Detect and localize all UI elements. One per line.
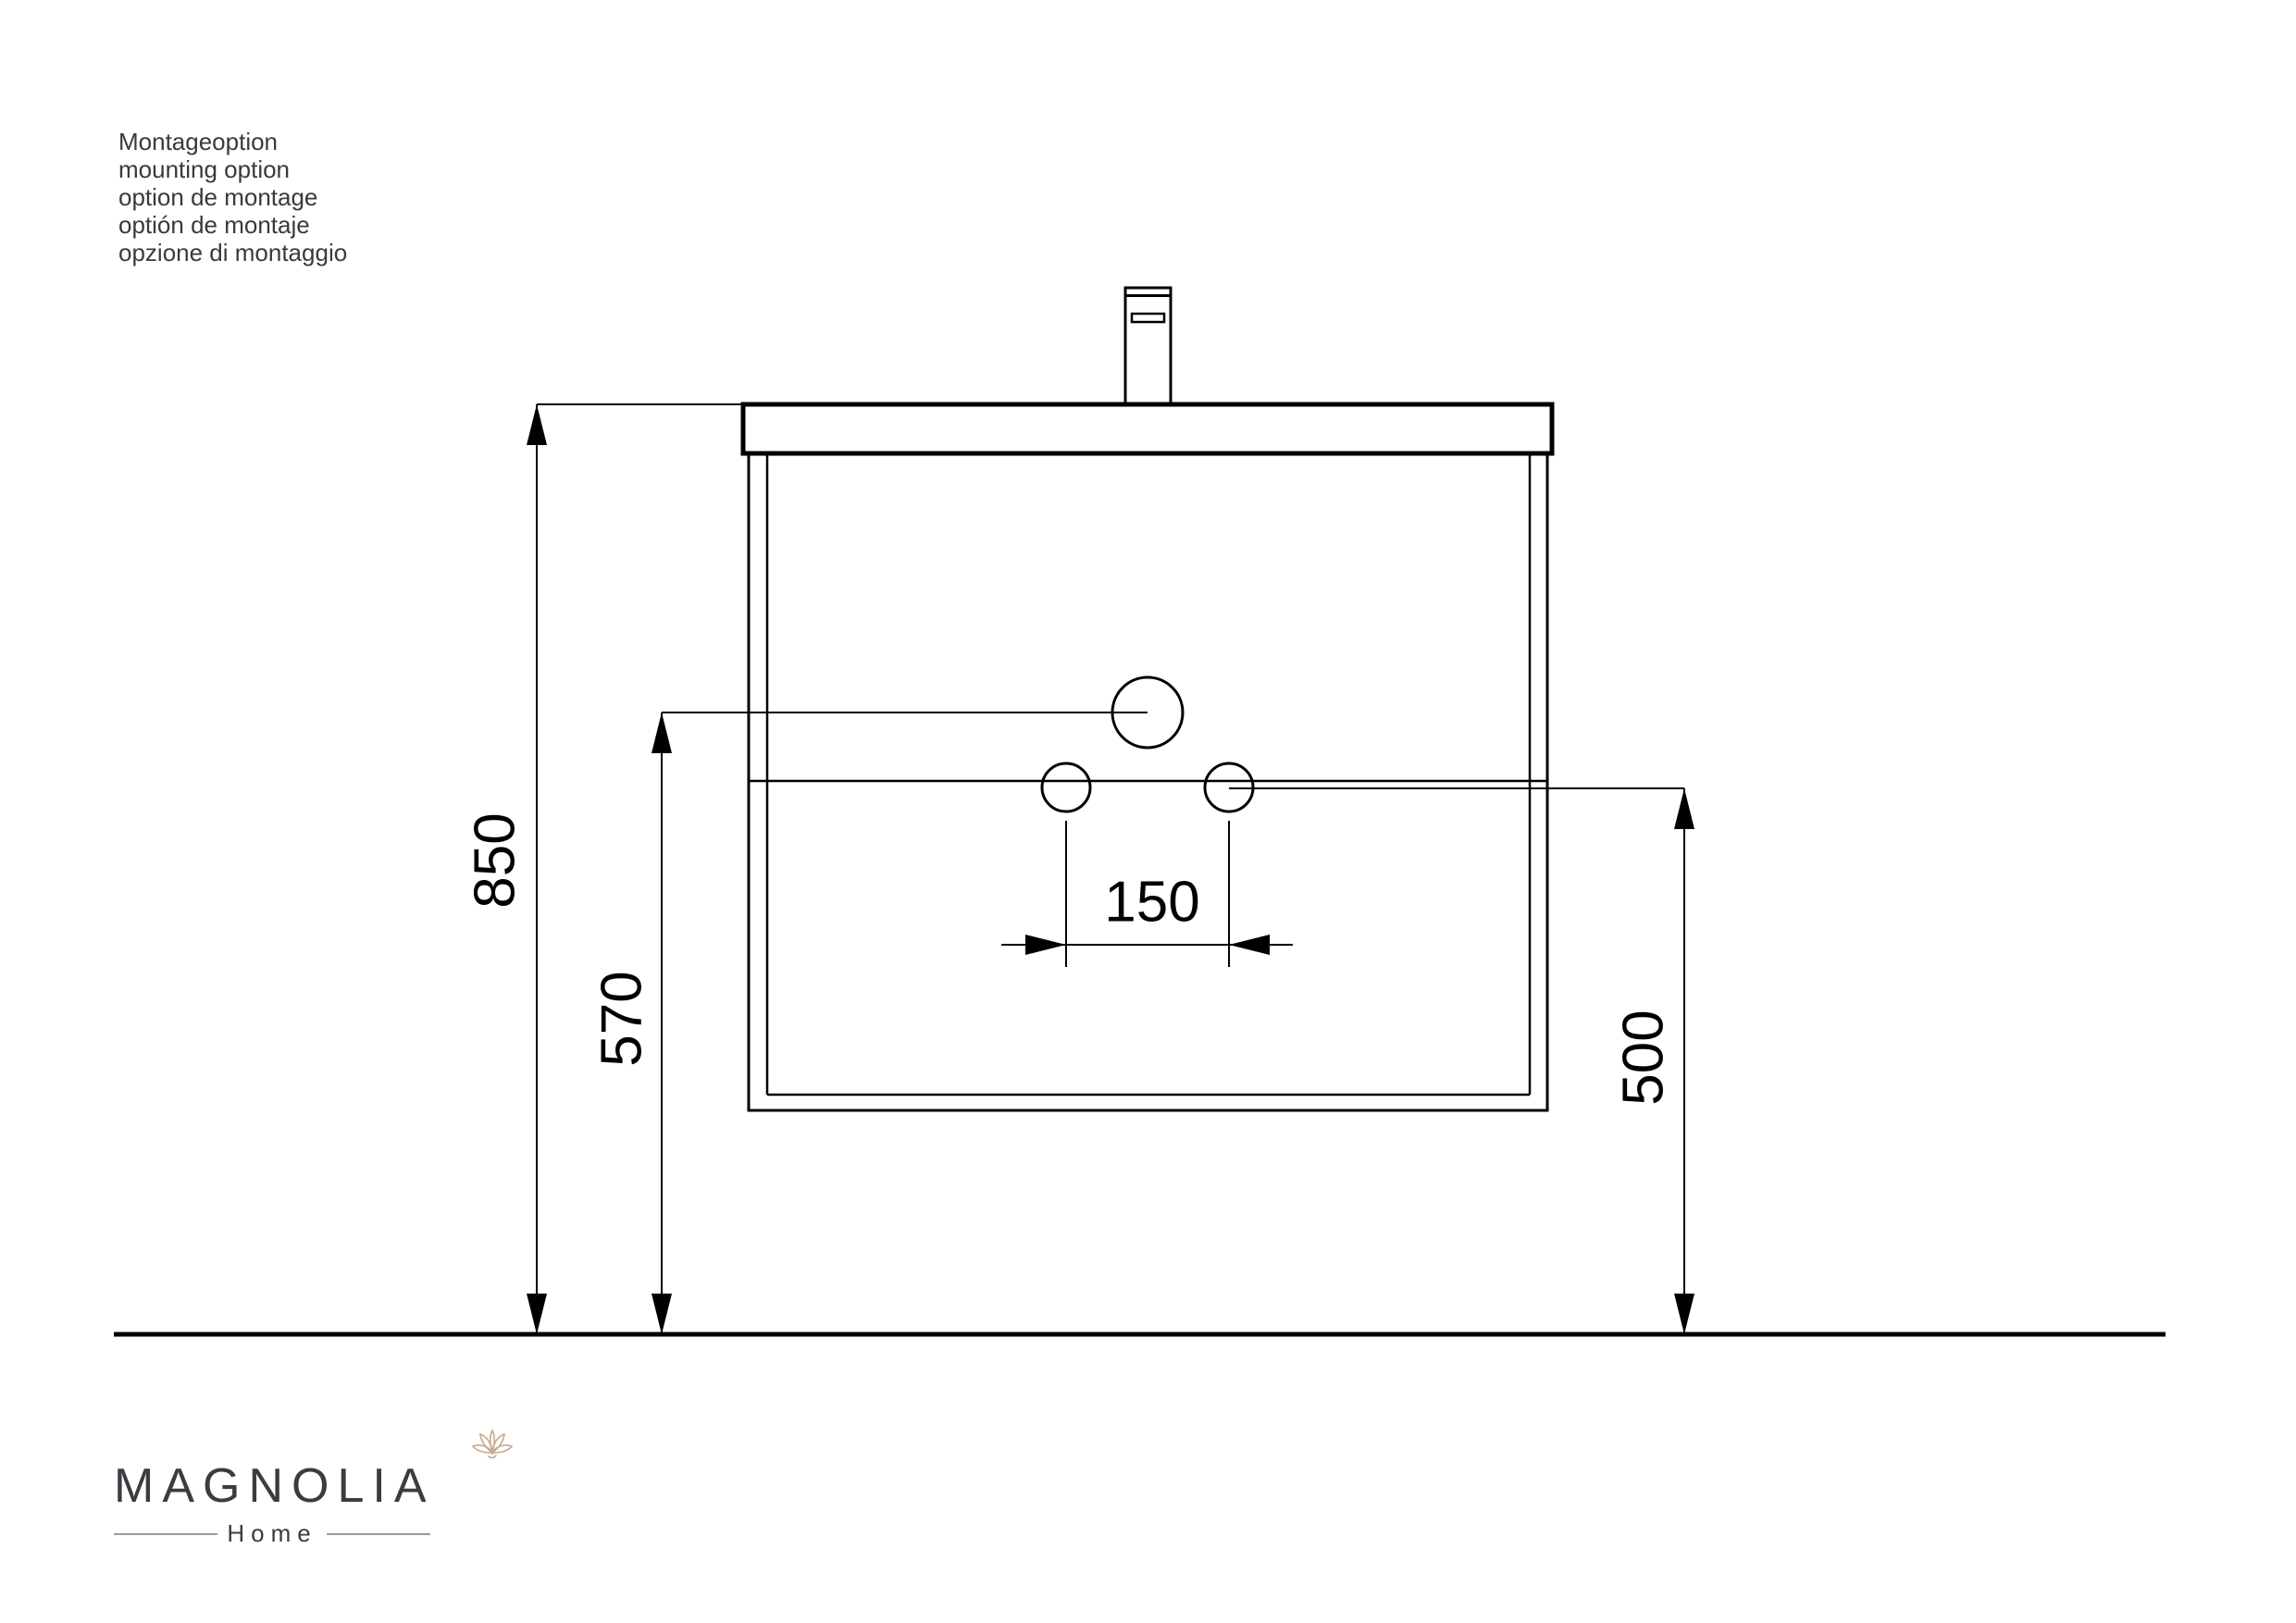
dim-850-arrow-up — [527, 404, 547, 445]
faucet-spout-slot — [1132, 314, 1164, 322]
logo-rule-right — [327, 1533, 430, 1535]
magnolia-flower-icon — [470, 1427, 515, 1462]
dim-570-arrow-up — [652, 712, 672, 753]
logo-rule-left — [114, 1533, 217, 1535]
dim-500-label: 500 — [1612, 1010, 1676, 1105]
dimension-850: 850 — [464, 404, 744, 1334]
dim-150-arrow-right — [1229, 935, 1270, 955]
dim-500-arrow-down — [1674, 1294, 1694, 1334]
vanity-cabinet — [749, 453, 1547, 1110]
dim-150-arrow-left — [1025, 935, 1066, 955]
dimension-500: 500 — [1229, 788, 1694, 1334]
technical-drawing: 850 570 500 150 — [0, 0, 2296, 1623]
supply-hole-left-circle — [1042, 763, 1090, 811]
washbasin-top — [743, 404, 1552, 453]
faucet-body — [1125, 288, 1171, 404]
faucet — [1125, 288, 1171, 404]
logo-tagline-text: Home — [227, 1519, 316, 1548]
logo-subline: Home — [114, 1519, 430, 1548]
dim-570-arrow-down — [652, 1294, 672, 1334]
dimension-570: 570 — [590, 712, 1148, 1334]
page: Montageoption mounting option option de … — [0, 0, 2296, 1623]
logo-brand-text: MAGNOLIA — [114, 1458, 430, 1514]
dim-570-label: 570 — [590, 971, 654, 1066]
dim-150-label: 150 — [1104, 871, 1199, 935]
magnolia-home-logo: MAGNOLIA Home — [114, 1458, 430, 1548]
dimension-150: 150 — [1001, 821, 1293, 967]
dim-500-arrow-up — [1674, 788, 1694, 829]
dim-850-arrow-down — [527, 1294, 547, 1334]
dim-850-label: 850 — [464, 812, 527, 908]
